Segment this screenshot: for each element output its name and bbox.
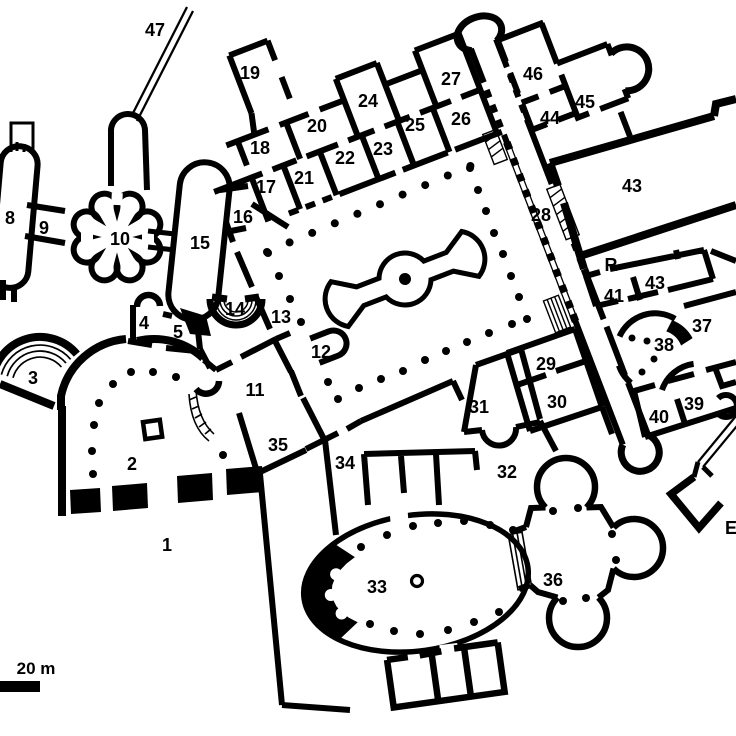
svg-text:14: 14 bbox=[225, 299, 245, 319]
svg-text:47: 47 bbox=[145, 20, 165, 40]
svg-text:20 m: 20 m bbox=[17, 659, 56, 678]
svg-text:35: 35 bbox=[268, 435, 288, 455]
svg-text:36: 36 bbox=[543, 570, 563, 590]
svg-text:2: 2 bbox=[127, 454, 137, 474]
svg-text:E: E bbox=[725, 518, 736, 538]
svg-text:13: 13 bbox=[271, 307, 291, 327]
svg-text:1: 1 bbox=[162, 535, 172, 555]
svg-text:32: 32 bbox=[497, 462, 517, 482]
svg-text:31: 31 bbox=[469, 397, 489, 417]
svg-text:19: 19 bbox=[240, 63, 260, 83]
svg-text:33: 33 bbox=[367, 577, 387, 597]
svg-text:18: 18 bbox=[250, 138, 270, 158]
svg-text:29: 29 bbox=[536, 354, 556, 374]
svg-text:9: 9 bbox=[39, 218, 49, 238]
svg-text:R: R bbox=[605, 255, 618, 275]
svg-text:39: 39 bbox=[684, 394, 704, 414]
svg-text:8: 8 bbox=[5, 208, 15, 228]
svg-text:37: 37 bbox=[692, 316, 712, 336]
svg-text:44: 44 bbox=[540, 108, 560, 128]
svg-text:24: 24 bbox=[358, 91, 378, 111]
svg-text:30: 30 bbox=[547, 392, 567, 412]
svg-text:25: 25 bbox=[405, 115, 425, 135]
svg-text:3: 3 bbox=[28, 368, 38, 388]
svg-text:4: 4 bbox=[139, 313, 149, 333]
svg-text:5: 5 bbox=[173, 322, 183, 342]
svg-text:22: 22 bbox=[335, 148, 355, 168]
svg-text:38: 38 bbox=[654, 335, 674, 355]
svg-text:23: 23 bbox=[373, 139, 393, 159]
svg-text:27: 27 bbox=[441, 69, 461, 89]
svg-text:17: 17 bbox=[256, 177, 276, 197]
svg-text:21: 21 bbox=[294, 168, 314, 188]
svg-text:11: 11 bbox=[245, 380, 264, 400]
svg-text:46: 46 bbox=[523, 64, 543, 84]
svg-text:28: 28 bbox=[531, 205, 551, 225]
svg-text:45: 45 bbox=[575, 92, 595, 112]
svg-text:40: 40 bbox=[649, 407, 669, 427]
svg-text:20: 20 bbox=[307, 116, 327, 136]
svg-text:34: 34 bbox=[335, 453, 355, 473]
svg-text:26: 26 bbox=[451, 109, 471, 129]
svg-text:16: 16 bbox=[233, 207, 253, 227]
svg-text:10: 10 bbox=[110, 229, 130, 249]
svg-text:12: 12 bbox=[311, 342, 331, 362]
svg-text:43: 43 bbox=[622, 176, 642, 196]
svg-text:15: 15 bbox=[190, 233, 210, 253]
svg-text:43: 43 bbox=[645, 273, 665, 293]
svg-text:41: 41 bbox=[604, 286, 624, 306]
